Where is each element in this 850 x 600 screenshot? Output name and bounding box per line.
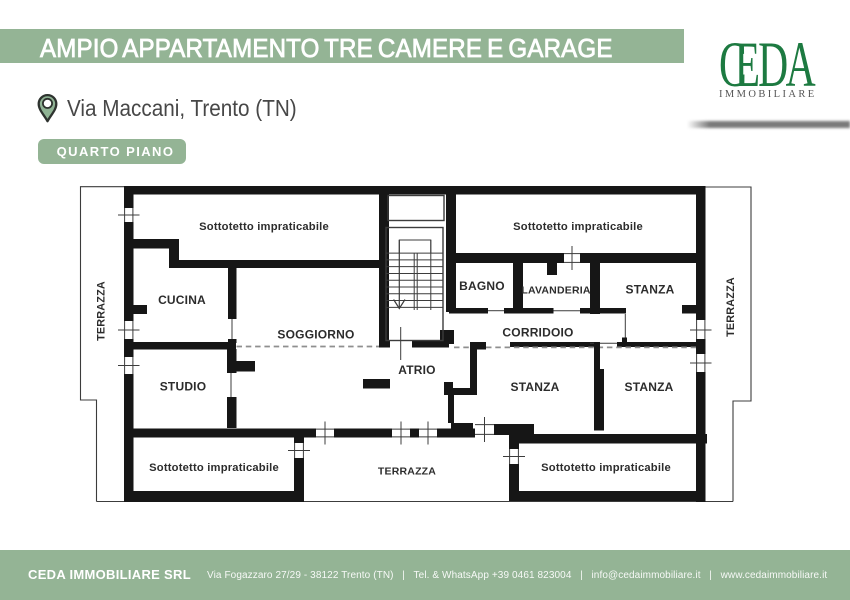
svg-text:Sottotetto impraticabile: Sottotetto impraticabile [149, 462, 279, 474]
svg-text:STANZA: STANZA [625, 380, 674, 394]
svg-text:SOGGIORNO: SOGGIORNO [277, 328, 354, 342]
svg-text:Sottotetto impraticabile: Sottotetto impraticabile [513, 221, 643, 233]
svg-text:STANZA: STANZA [511, 380, 560, 394]
svg-text:BAGNO: BAGNO [459, 279, 505, 293]
svg-text:CUCINA: CUCINA [158, 293, 206, 307]
svg-text:TERRAZZA: TERRAZZA [378, 466, 436, 478]
svg-text:TERRAZZA: TERRAZZA [725, 277, 737, 337]
svg-text:Sottotetto impraticabile: Sottotetto impraticabile [199, 221, 329, 233]
svg-text:Sottotetto impraticabile: Sottotetto impraticabile [541, 462, 671, 474]
svg-text:LAVANDERIA: LAVANDERIA [521, 285, 590, 297]
svg-text:ATRIO: ATRIO [398, 363, 435, 377]
svg-text:CORRIDOIO: CORRIDOIO [502, 326, 573, 340]
svg-text:STUDIO: STUDIO [160, 380, 207, 394]
svg-text:STANZA: STANZA [626, 283, 675, 297]
svg-text:TERRAZZA: TERRAZZA [96, 281, 108, 341]
